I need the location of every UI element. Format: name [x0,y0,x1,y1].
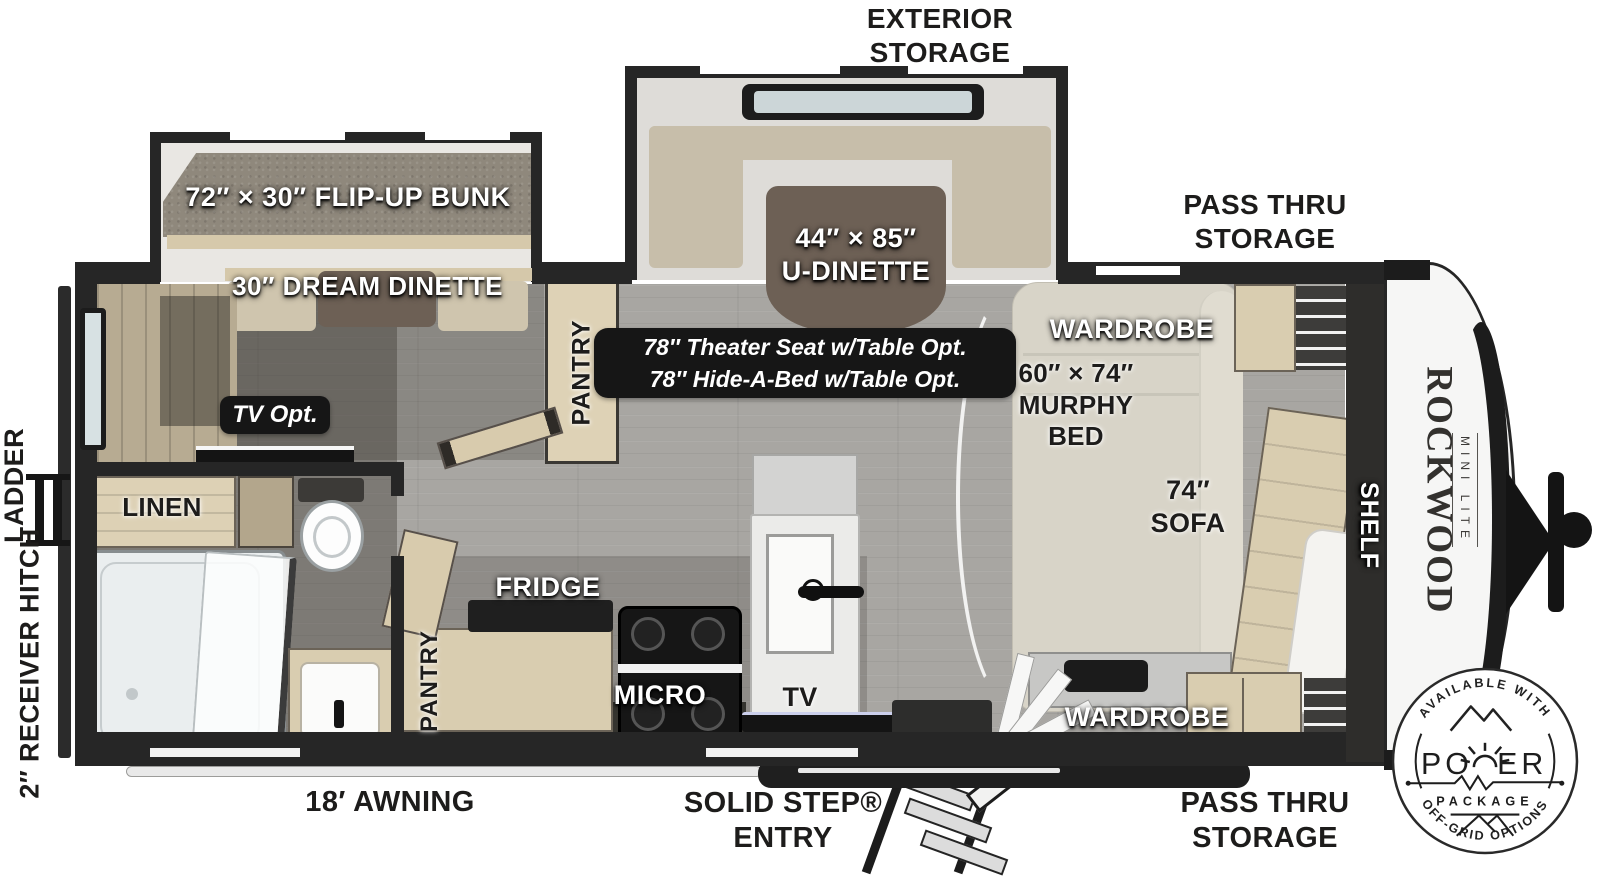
flip-up-bunk-label: 72″ × 30″ FLIP-UP BUNK [160,182,536,213]
theater-option-badge: 78″ Theater Seat w/Table Opt. 78″ Hide-A… [594,328,1016,398]
toilet-seat-ring [313,516,351,558]
pantry-lower-labelwrap: PANTRY [404,634,456,728]
bunk-slide-window-2 [425,132,510,140]
power-package-badge: AVAILABLE WITH OFF-GRID OPTIONS PO ER PA… [1390,666,1580,856]
brand-subtitle: MINI LITE [1452,433,1478,547]
dream-dinette-label: 30″ DREAM DINETTE [195,271,540,302]
shower-glass-door [191,551,297,757]
hitch-a-frame [1506,470,1554,614]
solid-step-label: SOLID STEP® ENTRY [658,786,908,857]
u-dinette-bench-left [649,126,743,268]
exterior-storage-label: EXTERIOR STORAGE [810,2,1070,70]
floorplan: LADDER 2″ RECEIVER HITCH 72″ × 30″ FLIP-… [0,0,1600,879]
pass-thru-top-label: PASS THRU STORAGE [1140,188,1390,256]
sofa-label: 74″ SOFA [1136,474,1240,540]
cap-trim-top [1384,260,1430,280]
receiver-hitch-label-text: 2″ RECEIVER HITCH [14,528,47,798]
micro-shelf-bar [618,664,742,673]
bath-divider-wall [88,462,404,476]
tv-label: TV [772,682,828,713]
wardrobe-bottom-label: WARDROBE [1044,702,1250,733]
toilet-tank [298,478,364,502]
awning-roller-slit [798,768,1060,773]
shelf-label: SHELF [1354,482,1383,569]
burner [631,617,665,651]
doorway-sill [706,748,858,757]
pantry-upper-label: PANTRY [568,319,597,425]
badge-package-text: PACKAGE [1436,794,1534,808]
hitch-coupler-knob [1556,512,1592,548]
pantry-lower-label: PANTRY [416,630,444,732]
front-cabinet-top [1234,284,1296,372]
rear-window [80,308,106,450]
door-header-flap [752,454,858,518]
pass-thru-bottom-label: PASS THRU STORAGE [1138,786,1392,857]
badge-power-left: PO [1421,748,1473,781]
skylight-glass [754,91,972,113]
bunk-slide-window-1 [230,132,345,140]
u-slide-window-2 [908,66,1023,74]
receiver-hitch-label: 2″ RECEIVER HITCH [0,556,60,771]
awning-tube [126,766,762,777]
u-slide-window-1 [700,66,840,74]
tv-option-badge: TV Opt. [220,396,330,434]
micro-label: MICRO [598,680,722,711]
u-dinette-bench-right [952,126,1051,268]
window-slit-bottom-left [150,748,300,757]
linen-label: LINEN [88,492,236,523]
vanity-faucet [334,700,344,728]
window-slit-top [1096,266,1180,275]
wardrobe-bottom-tablet [1064,660,1148,692]
u-dinette-label: 44″ × 85″ U-DINETTE [746,222,966,288]
shower-drain [126,688,138,700]
divider-dot-right [1559,781,1564,786]
bath-kitchen-wall [391,556,404,732]
ladder-label-text: LADDER [0,428,30,543]
range-stove [618,606,742,748]
bath-side-cabinet [238,476,294,548]
shelf-labelwrap: SHELF [1346,430,1390,620]
burner [691,617,725,651]
fridge-label: FRIDGE [478,572,618,603]
brand-sub-wrap: MINI LITE [1452,404,1478,576]
wardrobe-top-label: WARDROBE [1034,314,1230,345]
murphy-bed-label: 60″ × 74″ MURPHY BED [1000,358,1152,453]
door-lock-ring [802,579,824,601]
badge-power-right: ER [1497,748,1547,781]
divider-dot-left [1406,781,1411,786]
tv-optional-unit [196,446,354,462]
tv-unit [742,712,896,732]
bunk-ledge [167,235,531,249]
bath-door-stub [391,462,404,496]
awning-label: 18′ AWNING [245,786,535,819]
fridge-unit [468,600,613,632]
